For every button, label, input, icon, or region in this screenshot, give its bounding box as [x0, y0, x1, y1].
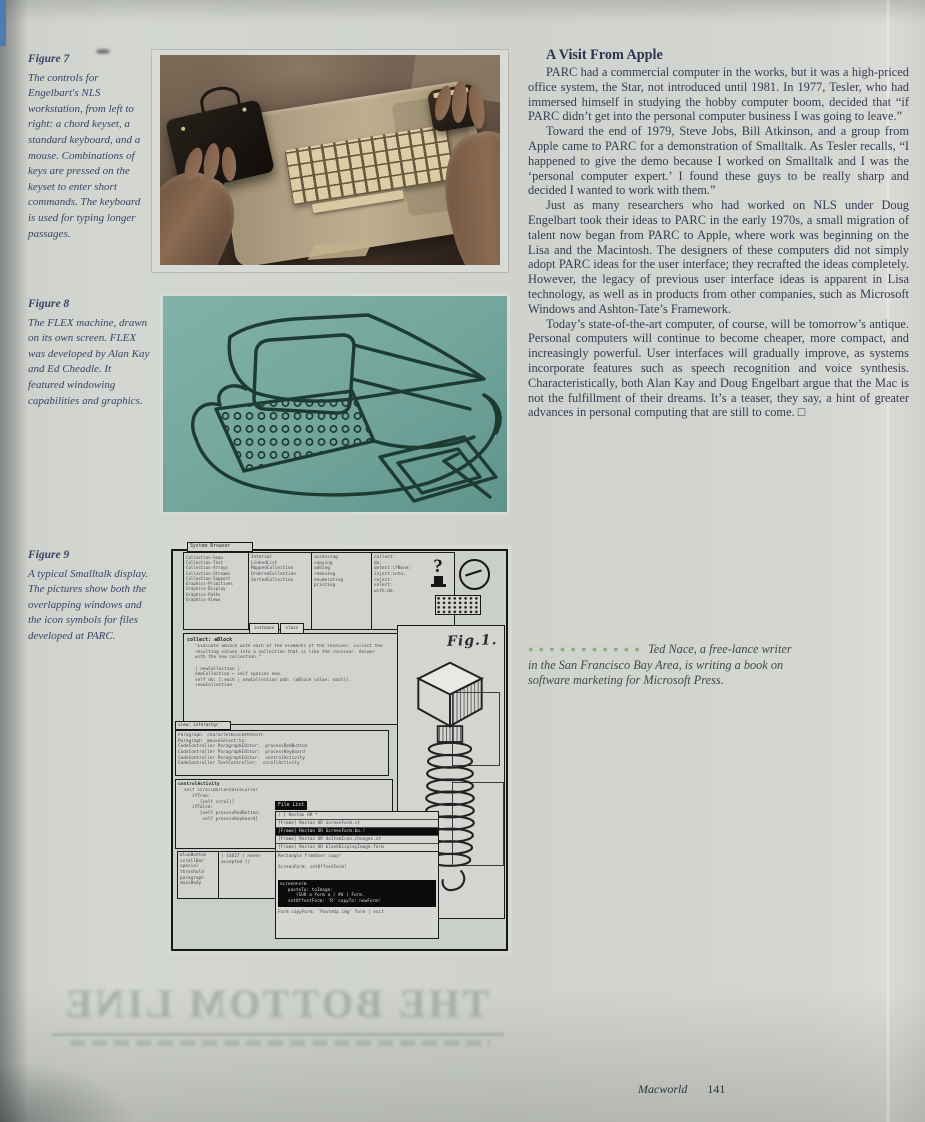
file-list-status-line: Form copyForm: 'PasteUp.img' form | exit	[276, 909, 438, 917]
browser-protocol-list: accessing copying adding removing enumer…	[312, 553, 372, 629]
keyset-screw	[181, 126, 186, 131]
figure9-smalltalk-screen: System Browser Collection-Sequ Collectio…	[167, 545, 512, 955]
article-paragraph: Toward the end of 1979, Steve Jobs, Bill…	[528, 124, 909, 198]
figure8-flex-drawing	[160, 293, 510, 515]
figure8-label: Figure 8	[28, 297, 150, 313]
file-row-selected: [Frame] Rectan OR ScreenForm.bo.!	[276, 828, 438, 836]
file-row: [Frame] Rectan OR blankDisplayImage.form	[276, 844, 438, 852]
figure9-caption-text: A typical Smalltalk display. The picture…	[28, 567, 150, 645]
highlighted-code-text: ScreenForm pasteTo: toImage: (SUR a form…	[280, 882, 434, 905]
nls-workstation-photo	[160, 55, 500, 265]
flex-machine-sketch	[160, 293, 510, 515]
scan-edge-artifact	[0, 0, 6, 46]
file-row: [Frame] Rectan OR ScreenForm.st	[276, 820, 438, 828]
browser-class-list: Interval LinkedList MappedCollection Ord…	[249, 553, 312, 629]
figure8-caption-text: The FLEX machine, drawn on its own scree…	[28, 316, 150, 410]
article-paragraph: Today’s state-of-the-art computer, of co…	[528, 317, 909, 421]
mini-list-items: blueButton scrollBar special threshold p…	[178, 852, 219, 898]
figure8-caption: Figure 8 The FLEX machine, drawn on its …	[28, 297, 150, 409]
view-window-tab: view: interactgr	[175, 721, 231, 730]
clock-icon	[459, 559, 490, 590]
article-paragraph: PARC had a commercial computer in the wo…	[528, 65, 909, 124]
figure9-label: Figure 9	[28, 548, 150, 564]
bleed-through-text-line	[70, 1040, 490, 1046]
icon-pedestal	[434, 576, 443, 584]
figure7-label: Figure 7	[28, 52, 150, 68]
figure9-caption: Figure 9 A typical Smalltalk display. Th…	[28, 548, 150, 645]
file-list-window: File List ( ) Rectan OR * [Frame] Rectan…	[275, 801, 439, 941]
file-list-body: ( ) Rectan OR * [Frame] Rectan OR Screen…	[275, 811, 439, 939]
browser-category-list: Collection-Sequ Collection-Text Collecti…	[184, 553, 249, 629]
article-column: A Visit From Apple PARC had a commercial…	[528, 47, 909, 420]
page-number: 141	[707, 1082, 725, 1097]
file-row: [Frame] Rectan OR doItemIcon.changes.st	[276, 836, 438, 844]
grid-icon	[435, 595, 481, 615]
system-browser-tab: System Browser	[187, 542, 253, 552]
mini-list-window: blueButton scrollBar special threshold p…	[177, 851, 289, 899]
magazine-name: Macworld	[638, 1082, 687, 1097]
page-footer: Macworld 141	[638, 1082, 725, 1097]
scanned-magazine-page: THE BOTTOM LINE Figure 7 The controls fo…	[0, 0, 925, 1122]
highlighted-code-block: ScreenForm pasteTo: toImage: (SUR a form…	[278, 880, 436, 907]
icon-base	[431, 584, 446, 587]
smalltalk-desktop: System Browser Collection-Sequ Collectio…	[171, 549, 508, 951]
label-on-console	[308, 241, 373, 260]
fig1-label: Fig.1.	[447, 633, 498, 649]
file-list-code-pane: Rectangle fromUser copy! ScreenForm: set…	[276, 852, 438, 878]
system-browser-window: Collection-Sequ Collection-Text Collecti…	[183, 552, 455, 630]
question-figure-icon: ?	[427, 557, 449, 589]
view-window: Paragraph characterBlockAtPoint: Paragra…	[175, 730, 389, 776]
figure7-caption: Figure 7 The controls for Engelbart's NL…	[28, 52, 150, 242]
article-paragraph: Just as many researchers who had worked …	[528, 198, 909, 316]
page-gutter-shadow	[0, 0, 28, 1122]
keyset-screw	[242, 107, 247, 112]
bio-decorative-dots: ●●●●●●●●●●●	[528, 644, 645, 654]
bleed-through-headline: THE BOTTOM LINE	[58, 976, 494, 1032]
figure7-caption-text: The controls for Engelbart's NLS worksta…	[28, 71, 150, 243]
author-bio: ●●●●●●●●●●● Ted Nace, a free-lance write…	[528, 642, 800, 689]
file-row: ( ) Rectan OR *	[276, 812, 438, 820]
clock-hand	[465, 569, 482, 576]
figure7-photo	[152, 50, 508, 272]
view-window-lines: Paragraph characterBlockAtPoint: Paragra…	[178, 733, 386, 767]
file-list-tab: File List	[275, 801, 307, 810]
question-mark-glyph: ?	[427, 557, 449, 576]
browser-columns: Collection-Sequ Collection-Text Collecti…	[184, 553, 454, 629]
bleed-through-rule	[52, 1033, 504, 1036]
article-heading: A Visit From Apple	[546, 47, 909, 63]
